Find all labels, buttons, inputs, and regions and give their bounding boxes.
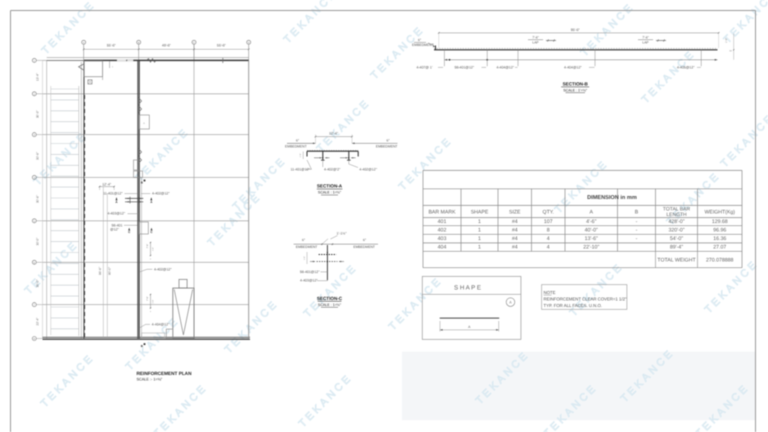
svg-text:#4: #4 — [512, 227, 518, 233]
svg-text:LAP: LAP — [642, 40, 649, 44]
svg-text:27.07: 27.07 — [713, 245, 726, 251]
svg-text:4-404@12": 4-404@12" — [152, 322, 170, 326]
svg-text:96.96: 96.96 — [713, 227, 726, 233]
svg-text:8: 8 — [547, 227, 550, 233]
svg-text:129.68: 129.68 — [712, 219, 728, 225]
svg-text:1'-0": 1'-0" — [303, 256, 306, 260]
svg-text:DIMENSION in mm: DIMENSION in mm — [587, 194, 637, 201]
svg-text:49'-6": 49'-6" — [162, 44, 172, 48]
svg-text:4'-6": 4'-6" — [586, 219, 596, 225]
svg-text:90'-0": 90'-0" — [107, 267, 111, 275]
svg-text:WEIGHT(Kg): WEIGHT(Kg) — [704, 209, 735, 215]
svg-text:REINFORCEMENT PLAN: REINFORCEMENT PLAN — [137, 371, 193, 376]
svg-text:SIZE: SIZE — [509, 209, 521, 215]
svg-text:98-401@12": 98-401@12" — [455, 65, 475, 69]
svg-text:x: x — [150, 310, 151, 313]
svg-text:55'-6": 55'-6" — [217, 44, 227, 48]
svg-text:89'-4": 89'-4" — [670, 245, 683, 251]
svg-text:1: 1 — [478, 219, 481, 225]
svg-text:403: 403 — [438, 236, 447, 242]
svg-text:402: 402 — [438, 227, 447, 233]
svg-text:30'-0": 30'-0" — [36, 280, 40, 288]
svg-text:1: 1 — [478, 236, 481, 242]
svg-text:54'-0": 54'-0" — [670, 236, 683, 242]
svg-text:#4: #4 — [512, 236, 518, 242]
svg-text:7'-6": 7'-6" — [532, 36, 539, 40]
svg-text:-: - — [636, 219, 638, 225]
svg-text:-: - — [636, 227, 638, 233]
svg-text:SECTION-C: SECTION-C — [317, 296, 343, 301]
svg-text:401: 401 — [438, 219, 447, 225]
svg-text:D: D — [248, 41, 250, 44]
svg-text:55'-6": 55'-6" — [107, 44, 117, 48]
svg-text:4-402@'2": 4-402@'2" — [324, 167, 341, 171]
svg-text:LAP: LAP — [532, 40, 539, 44]
svg-text:4-404@12": 4-404@12" — [496, 65, 514, 69]
svg-text:30'-0": 30'-0" — [36, 238, 40, 246]
svg-text:EMBEDMENT: EMBEDMENT — [353, 245, 375, 249]
svg-text:TYP. FOR ALL FACES. U.N.O.: TYP. FOR ALL FACES. U.N.O. — [544, 303, 603, 308]
svg-text:#4: #4 — [512, 219, 518, 225]
svg-text:EMBEDMENT: EMBEDMENT — [296, 245, 318, 249]
svg-text:LENGTH: LENGTH — [666, 212, 687, 218]
svg-text:4-403@12": 4-403@12" — [300, 279, 318, 283]
svg-text:B: B — [635, 209, 639, 215]
svg-text:x: x — [150, 258, 151, 261]
svg-text:SCALE : 1'=½": SCALE : 1'=½" — [563, 88, 588, 92]
svg-text:22'-4": 22'-4" — [36, 318, 40, 326]
svg-text:13'-4": 13'-4" — [36, 73, 40, 81]
svg-text:12'-4": 12'-4" — [102, 182, 112, 186]
svg-text:7'-6": 7'-6" — [642, 36, 649, 40]
svg-text:1: 1 — [478, 245, 481, 251]
svg-text:30'-0": 30'-0" — [36, 110, 40, 118]
svg-text:98-401@12": 98-401@12" — [300, 270, 320, 274]
svg-text:1'-0": 1'-0" — [151, 247, 154, 251]
svg-text:@12": @12" — [110, 227, 119, 231]
svg-text:SECTION-B: SECTION-B — [563, 82, 589, 87]
svg-text:1'-0": 1'-0" — [725, 38, 728, 43]
svg-text:95'-6": 95'-6" — [571, 28, 581, 32]
svg-text:22'-10": 22'-10" — [583, 245, 599, 251]
svg-text:1'-1½": 1'-1½" — [337, 231, 348, 235]
svg-text:40'-0": 40'-0" — [585, 227, 598, 233]
svg-text:REINFORCEMENT CLEAR COVER=1 1/: REINFORCEMENT CLEAR COVER=1 1/2" — [544, 297, 627, 302]
svg-text:1'-0": 1'-0" — [151, 299, 154, 303]
svg-text:BAR MARK: BAR MARK — [428, 209, 456, 215]
svg-text:NOTE: NOTE — [544, 290, 556, 295]
svg-text:SCALE :- 1=⅛": SCALE :- 1=⅛" — [137, 378, 163, 382]
svg-text:4-404@12": 4-404@12" — [564, 65, 582, 69]
svg-text:4: 4 — [547, 245, 550, 251]
svg-text:1: 1 — [478, 227, 481, 233]
svg-text:#4: #4 — [512, 245, 518, 251]
svg-text:30'-6": 30'-6" — [36, 195, 40, 203]
svg-text:16.36: 16.36 — [713, 236, 726, 242]
svg-text:S H A P E: S H A P E — [454, 285, 481, 292]
svg-text:EMBEDMENT: EMBEDMENT — [376, 144, 398, 148]
svg-text:404: 404 — [438, 245, 447, 251]
svg-text:107: 107 — [544, 219, 553, 225]
svg-text:EMBEDMENT: EMBEDMENT — [285, 144, 307, 148]
svg-text:QTY.: QTY. — [543, 209, 554, 215]
svg-text:4-402@12": 4-402@12" — [359, 167, 377, 171]
svg-text:7'-6": 7'-6" — [146, 244, 149, 249]
svg-text:428'-0": 428'-0" — [668, 219, 684, 225]
svg-text:A: A — [590, 209, 594, 215]
svg-text:96'-6": 96'-6" — [98, 267, 102, 275]
svg-text:30'-6": 30'-6" — [36, 152, 40, 160]
svg-text:11-401@12": 11-401@12" — [103, 192, 123, 196]
svg-text:C: C — [193, 41, 195, 44]
svg-text:4-403@12": 4-403@12" — [107, 212, 125, 216]
svg-text:SECTION-A: SECTION-A — [317, 184, 343, 189]
svg-text:12'-4": 12'-4" — [329, 131, 339, 135]
svg-text:-: - — [636, 236, 638, 242]
svg-text:4: 4 — [547, 236, 550, 242]
svg-text:4-402@12": 4-402@12" — [154, 267, 172, 271]
svg-text:4-402@12": 4-402@12" — [152, 192, 170, 196]
svg-text:SCALE : 1=½": SCALE : 1=½" — [318, 303, 342, 307]
svg-text:1'-0": 1'-0" — [299, 153, 302, 157]
svg-text:270.078888: 270.078888 — [706, 257, 734, 263]
svg-text:320'-0": 320'-0" — [668, 227, 684, 233]
svg-text:13'-6": 13'-6" — [585, 236, 598, 242]
svg-text:7'-6": 7'-6" — [146, 296, 149, 301]
svg-text:4-405@12": 4-405@12" — [677, 65, 695, 69]
svg-text:SHAPE: SHAPE — [471, 209, 489, 215]
svg-text:4-407@ 1': 4-407@ 1' — [416, 65, 432, 69]
svg-text:TOTAL WEIGHT: TOTAL WEIGHT — [657, 257, 696, 263]
svg-text:SCALE : 1=½": SCALE : 1=½" — [318, 191, 342, 195]
